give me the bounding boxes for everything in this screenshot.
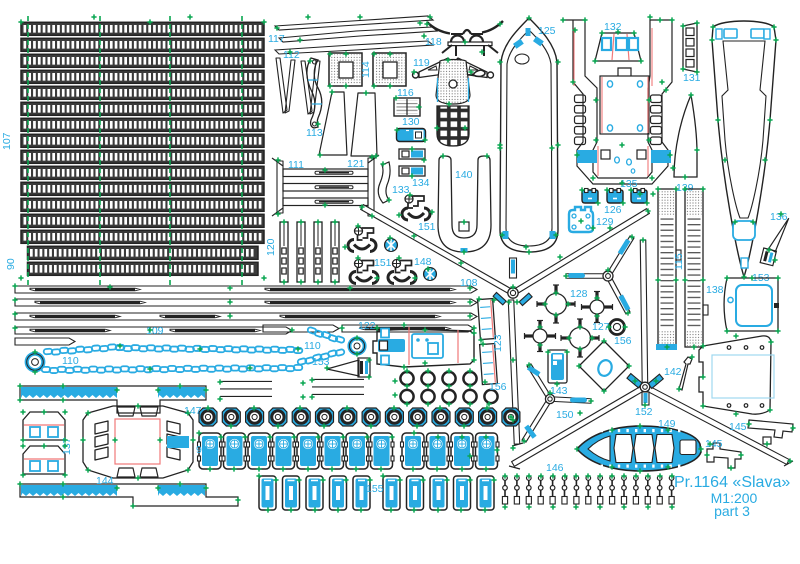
svg-text:145: 145 bbox=[729, 421, 747, 433]
svg-text:108: 108 bbox=[460, 277, 478, 289]
svg-text:93: 93 bbox=[196, 444, 208, 456]
svg-text:136: 136 bbox=[770, 211, 788, 223]
svg-text:120: 120 bbox=[265, 238, 277, 256]
svg-text:119: 119 bbox=[413, 57, 430, 69]
svg-text:156: 156 bbox=[489, 381, 507, 393]
svg-text:134: 134 bbox=[412, 177, 430, 189]
svg-text:112: 112 bbox=[283, 49, 300, 61]
svg-text:122: 122 bbox=[358, 320, 376, 332]
svg-text:107: 107 bbox=[1, 132, 13, 150]
svg-text:109: 109 bbox=[146, 325, 164, 337]
svg-text:117: 117 bbox=[268, 33, 285, 45]
svg-text:148: 148 bbox=[414, 256, 432, 268]
svg-text:128: 128 bbox=[570, 288, 588, 300]
svg-text:129: 129 bbox=[596, 216, 614, 228]
svg-text:146: 146 bbox=[546, 462, 564, 474]
svg-text:123: 123 bbox=[492, 334, 504, 352]
svg-text:155: 155 bbox=[366, 483, 384, 495]
svg-text:90: 90 bbox=[5, 258, 17, 270]
svg-text:part 3: part 3 bbox=[714, 503, 750, 519]
svg-text:113: 113 bbox=[306, 127, 323, 139]
svg-text:131: 131 bbox=[683, 72, 701, 84]
svg-text:132: 132 bbox=[604, 21, 622, 33]
svg-text:110: 110 bbox=[62, 355, 79, 367]
svg-text:125: 125 bbox=[538, 25, 556, 37]
svg-text:151: 151 bbox=[374, 257, 392, 269]
svg-text:140: 140 bbox=[455, 169, 473, 181]
svg-text:150: 150 bbox=[556, 409, 574, 421]
svg-text:Pr.1164 «Slava»: Pr.1164 «Slava» bbox=[674, 474, 790, 491]
svg-text:116: 116 bbox=[397, 87, 414, 99]
svg-text:114: 114 bbox=[360, 61, 372, 78]
svg-text:115: 115 bbox=[673, 253, 685, 270]
svg-text:126: 126 bbox=[604, 204, 622, 216]
svg-text:144: 144 bbox=[96, 475, 114, 487]
svg-text:138: 138 bbox=[706, 284, 724, 296]
svg-text:149: 149 bbox=[658, 418, 676, 430]
svg-text:111: 111 bbox=[288, 159, 304, 171]
svg-text:110: 110 bbox=[304, 340, 321, 352]
svg-text:147: 147 bbox=[184, 405, 202, 417]
svg-text:118: 118 bbox=[425, 36, 442, 48]
svg-text:142: 142 bbox=[664, 366, 682, 378]
svg-text:156: 156 bbox=[614, 335, 632, 347]
svg-text:133: 133 bbox=[392, 184, 410, 196]
svg-text:152: 152 bbox=[635, 406, 653, 418]
svg-text:151: 151 bbox=[418, 221, 436, 233]
svg-text:130: 130 bbox=[402, 116, 420, 128]
svg-text:121: 121 bbox=[347, 158, 365, 170]
